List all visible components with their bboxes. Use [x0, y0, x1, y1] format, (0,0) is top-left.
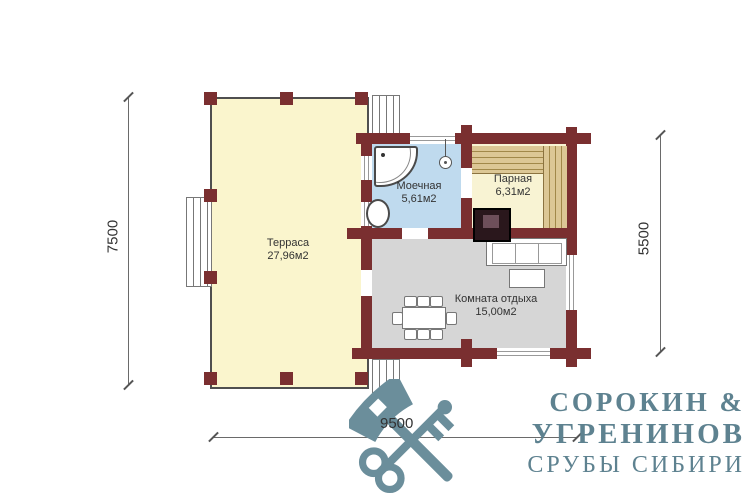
room-label-steam: Парная 6,31м2 [473, 173, 553, 199]
coffee-table-icon [509, 269, 545, 288]
chair-icon [417, 329, 430, 340]
sofa-cushion [492, 243, 516, 264]
log-end [461, 359, 472, 367]
dimension-line-right [660, 135, 661, 353]
stove-firebox [483, 215, 499, 228]
room-area: 5,61м2 [379, 193, 459, 206]
room-area: 27,96м2 [238, 250, 338, 263]
drain-icon [381, 153, 385, 157]
chair-icon [392, 312, 403, 325]
terrace-post [280, 372, 293, 385]
logo-line-3: СРУБЫ СИБИРИ [527, 450, 745, 481]
sofa-icon [486, 238, 567, 266]
dimension-label-left: 7500 [105, 207, 122, 267]
terrace-post [204, 271, 217, 284]
terrace-post [204, 92, 217, 105]
stairs-icon [372, 95, 400, 135]
room-label-terrace: Терраса 27,96м2 [238, 237, 338, 263]
wall [566, 127, 577, 367]
terrace-post [204, 189, 217, 202]
window [497, 348, 550, 359]
room-name: Терраса [238, 237, 338, 250]
chair-icon [404, 329, 417, 340]
logo-text: СОРОКИН & УГРЕНИНОВ СРУБЫ СИБИРИ [527, 386, 745, 481]
terrace-post [204, 372, 217, 385]
dimension-line-left [128, 97, 129, 385]
crossed-axe-key-icon [349, 379, 474, 502]
stove-icon [473, 208, 511, 242]
window [361, 156, 372, 180]
room-area: 6,31м2 [473, 186, 553, 199]
logo-line-2: УГРЕНИНОВ [527, 418, 745, 450]
room-label-lounge: Комната отдыха 15,00м2 [426, 293, 566, 319]
room-name: Моечная [379, 180, 459, 193]
room-name: Комната отдыха [426, 293, 566, 306]
logo-line-1: СОРОКИН & [527, 386, 745, 418]
log-end [461, 339, 472, 348]
shower-head-icon [439, 156, 452, 169]
wall [356, 133, 591, 144]
door-opening [402, 228, 428, 239]
chair-icon [404, 296, 417, 307]
door-opening [361, 270, 372, 296]
dimension-label-right: 5500 [636, 209, 653, 269]
wall [352, 348, 591, 359]
sofa-cushion [515, 243, 539, 264]
room-area: 15,00м2 [426, 306, 566, 319]
window [566, 255, 577, 310]
shower-tray-arc [374, 146, 411, 183]
terrace-post [355, 92, 368, 105]
dimension-label-bottom: 9500 [380, 415, 413, 432]
door-opening [461, 168, 472, 198]
window [410, 133, 455, 144]
room-label-washroom: Моечная 5,61м2 [379, 180, 459, 206]
chair-icon [430, 329, 443, 340]
floor-plan-canvas: 7500 5500 9500 [0, 0, 753, 502]
terrace-post [280, 92, 293, 105]
axe-icon [349, 379, 474, 502]
room-name: Парная [473, 173, 553, 186]
sofa-cushion [538, 243, 562, 264]
